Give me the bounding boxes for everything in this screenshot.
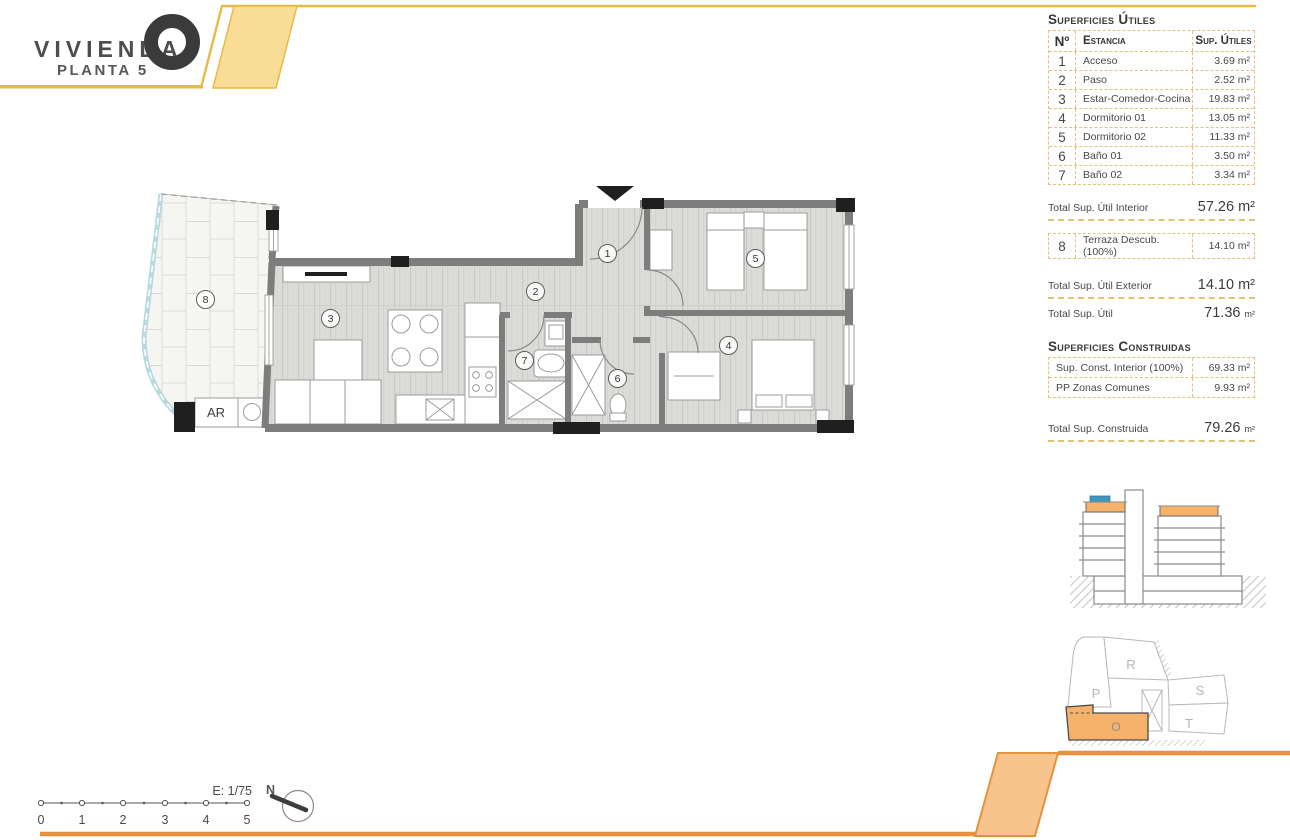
room-label-7: 7 — [515, 351, 534, 370]
table-row: PP Zonas Comunes 9.93 m² — [1049, 377, 1254, 397]
footer-accent-band — [0, 740, 1290, 840]
ar-label: AR — [207, 405, 225, 420]
floor-plan-drawing: AR — [138, 185, 862, 443]
construidas-table: Sup. Const. Interior (100%) 69.33 m² PP … — [1048, 357, 1255, 398]
room-label-4: 4 — [719, 336, 738, 355]
site-block-p: P — [1092, 686, 1101, 701]
utiles-title: Superficies Útiles — [1048, 12, 1255, 27]
total-construida: Total Sup. Construida 79.26 m² — [1048, 420, 1255, 436]
table-row: Sup. Const. Interior (100%) 69.33 m² — [1049, 358, 1254, 377]
room-label-1: 1 — [598, 244, 617, 263]
table-row: 5 Dormitorio 02 11.33 m² — [1049, 127, 1254, 146]
table-row: 6 Baño 01 3.50 m² — [1049, 146, 1254, 165]
building-section-diagram — [1068, 486, 1268, 616]
areas-panel: Superficies Útiles Nº Estancia Sup. Útil… — [1048, 12, 1255, 442]
col-num: Nº — [1049, 31, 1076, 51]
floor-title: PLANTA 5 — [57, 62, 149, 79]
room-label-2: 2 — [526, 282, 545, 301]
room-label-5: 5 — [746, 249, 765, 268]
construidas-title: Superficies Construidas — [1048, 339, 1255, 354]
site-block-s: S — [1196, 683, 1205, 698]
table-row: 4 Dormitorio 01 13.05 m² — [1049, 108, 1254, 127]
room-label-8: 8 — [196, 290, 215, 309]
utiles-table: Nº Estancia Sup. Útiles 1 Acceso 3.69 m²… — [1048, 30, 1255, 185]
total-interior: Total Sup. Útil Interior 57.26 m² — [1048, 199, 1255, 215]
table-row: 2 Paso 2.52 m² — [1049, 70, 1254, 89]
site-block-t: T — [1185, 716, 1193, 731]
entrance-arrow-icon — [596, 186, 634, 201]
room-label-6: 6 — [608, 369, 627, 388]
plan-sheet: VIVIENDA PLANTA 5 — [0, 0, 1290, 840]
divider — [1048, 219, 1255, 221]
total-exterior: Total Sup. Útil Exterior 14.10 m² — [1048, 277, 1255, 293]
divider — [1048, 440, 1255, 442]
col-room: Estancia — [1076, 35, 1192, 47]
logo-ring-icon — [144, 14, 200, 70]
site-block-o: O — [1111, 720, 1120, 734]
site-block-r: R — [1126, 657, 1135, 672]
terraza-row: 8 Terraza Descub.(100%) 14.10 m² — [1048, 233, 1255, 259]
col-area: Sup. Útiles — [1192, 31, 1254, 51]
utiles-header-row: Nº Estancia Sup. Útiles — [1049, 31, 1254, 51]
total-util: Total Sup. Útil 71.36 m² — [1048, 305, 1255, 321]
site-key-plan: P R S T O — [1056, 628, 1241, 753]
table-row: 7 Baño 02 3.34 m² — [1049, 165, 1254, 184]
table-row: 1 Acceso 3.69 m² — [1049, 51, 1254, 70]
room-label-3: 3 — [321, 309, 340, 328]
divider — [1048, 297, 1255, 299]
table-row: 3 Estar-Comedor-Cocina 19.83 m² — [1049, 89, 1254, 108]
